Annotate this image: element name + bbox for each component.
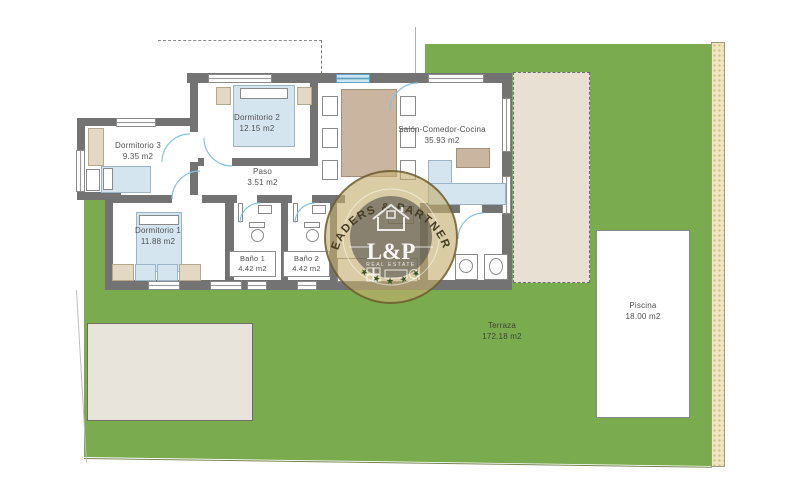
bed-pillows [139,215,179,225]
window [208,74,272,83]
room-area: 12.15 m2 [240,124,275,135]
coffee-table [456,148,490,168]
toilet-tank [249,222,265,228]
boundary-dashed-line-h [158,40,322,41]
bed-pillows [240,88,288,99]
logo-sub-text: REAL ESTATE [366,262,415,268]
window [148,281,180,290]
wall [113,195,172,203]
room-area: 11.88 m2 [141,237,175,248]
room-area: 4.42 m2 [292,264,321,274]
window [297,281,317,290]
window [502,98,511,152]
room-name: Dormitorio 2 [234,113,280,124]
closet [112,264,134,281]
room-name: Dormitorio 3 [115,141,161,152]
nightstand [297,87,312,105]
window [116,118,156,127]
room-area: 172.18 m2 [482,332,522,343]
room-label-dormitorio-1: Dormitorio 1 11.88 m2 [112,226,204,248]
window [210,281,242,290]
wall [190,162,198,195]
window [428,74,484,83]
window [336,74,370,83]
window [247,281,267,290]
closet [135,264,156,281]
parking-pad [87,323,253,421]
room-area: 9.35 m2 [123,152,153,163]
pool: Piscina 18.00 m2 [596,230,690,418]
room-label-dormitorio-3: Dormitorio 3 9.35 m2 [92,141,184,163]
door-leaf [293,203,298,222]
room-name: Baño 2 [294,254,319,264]
room-name: Paso [253,167,272,178]
room-label-piscina: Piscina 18.00 m2 [597,301,689,323]
room-area: 35.93 m2 [425,136,460,147]
room-name: Dormitorio 1 [135,226,181,237]
room-label-paso: Paso 3.51 m2 [225,167,300,189]
laundry-basin [489,258,503,275]
sink [258,205,272,214]
room-area: 18.00 m2 [626,312,661,323]
nightstand [86,169,100,191]
room-name: Piscina [629,301,656,312]
toilet-bowl [251,229,264,242]
covered-patio [513,72,590,283]
wall [232,158,318,166]
boundary-stone-wall [711,42,725,467]
toilet-tank [304,222,320,228]
room-name: Salón-Comedor-Cocina [398,125,486,136]
closet [157,264,178,281]
dining-table [341,89,397,177]
room-label-bano-1: Baño 1 4.42 m2 [229,251,276,277]
boundary-dashed-line-v [321,40,322,74]
washing-machine-door [459,259,473,273]
room-label-salon: Salón-Comedor-Cocina 35.93 m2 [390,125,494,147]
room-name: Terraza [488,321,516,332]
room-label-dormitorio-2: Dormitorio 2 12.15 m2 [212,113,302,135]
chair [400,96,416,116]
window [76,150,85,192]
room-area: 3.51 m2 [247,178,277,189]
chair [322,128,338,148]
floor-plan-page: Piscina 18.00 m2 Terraza 172.18 m2 [0,0,800,500]
wall [198,158,204,166]
toilet-bowl [306,229,319,242]
room-area: 4.42 m2 [238,264,267,274]
room-name: Baño 1 [240,254,265,264]
closet [179,264,201,281]
boundary-line-v [415,27,416,73]
wall [202,195,237,203]
watermark-logo: LEADERS & PARTNERS L&P REAL ESTATE ★ ★ ★… [321,167,461,307]
wall [190,73,198,132]
chair [322,96,338,116]
door-leaf [238,203,243,222]
room-label-terraza: Terraza 172.18 m2 [452,321,552,343]
nightstand [216,87,231,105]
bed-pillows [103,168,113,190]
logo-monogram: L&P [367,239,416,264]
